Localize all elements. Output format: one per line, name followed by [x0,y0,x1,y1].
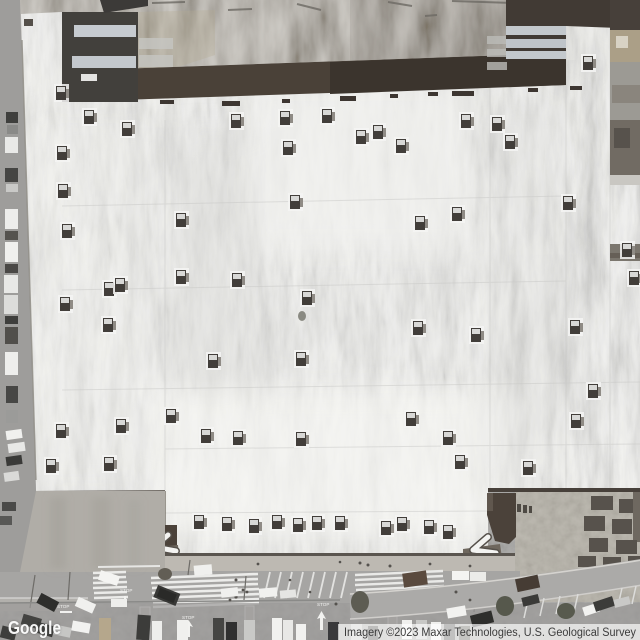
svg-text:STOP: STOP [182,615,194,620]
svg-text:STOP: STOP [120,588,132,593]
svg-text:Imagery ©2023 Maxar Technologi: Imagery ©2023 Maxar Technologies, U.S. G… [344,627,636,639]
svg-text:STOP: STOP [317,602,329,607]
svg-text:STOP: STOP [57,604,69,609]
svg-text:Google: Google [8,618,61,638]
